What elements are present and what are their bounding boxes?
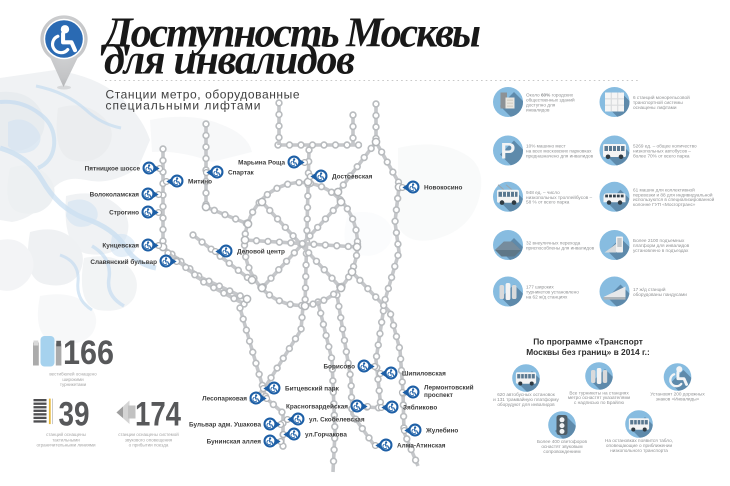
svg-text:Шипиловская: Шипиловская — [402, 371, 446, 378]
svg-text:станции оснащены системой: станции оснащены системой — [118, 431, 179, 437]
svg-text:P: P — [501, 138, 516, 163]
svg-text:установлено в подъездах: установлено в подъездах — [633, 248, 689, 253]
svg-text:Бунинская аллея: Бунинская аллея — [207, 439, 262, 446]
svg-text:Алма-Атинская: Алма-Атинская — [397, 443, 446, 450]
svg-text:Славянский бульвар: Славянский бульвар — [90, 258, 157, 266]
svg-text:Москвы без границ» в 2014 г.:: Москвы без границ» в 2014 г.: — [526, 347, 650, 357]
svg-text:ограничительными линиями: ограничительными линиями — [36, 443, 96, 448]
svg-text:оснащены лифтами: оснащены лифтами — [633, 105, 677, 110]
svg-text:Жулебино: Жулебино — [425, 427, 458, 435]
svg-text:звукового оповещения: звукового оповещения — [125, 437, 173, 442]
svg-text:оборудуют для инвалидов: оборудуют для инвалидов — [497, 402, 555, 407]
svg-text:турникетами: турникетами — [60, 382, 87, 387]
svg-text:174: 174 — [135, 396, 181, 434]
svg-text:на 62 ж/д станциях: на 62 ж/д станциях — [526, 294, 568, 299]
svg-text:вестибюлей оснащено: вестибюлей оснащено — [49, 371, 97, 377]
svg-text:Кунцевская: Кунцевская — [102, 243, 139, 250]
svg-text:Спартак: Спартак — [228, 170, 255, 177]
svg-text:Марьина Роща: Марьина Роща — [238, 160, 285, 167]
svg-text:Деловой центр: Деловой центр — [237, 248, 285, 256]
svg-text:с надписью по Брайлю: с надписью по Брайлю — [574, 399, 624, 405]
svg-text:знаков «Инвалиды»: знаков «Инвалиды» — [656, 396, 700, 401]
svg-text:специальными лифтами: специальными лифтами — [106, 99, 261, 113]
svg-text:Строгино: Строгино — [109, 210, 139, 217]
svg-text:приспособлены для инвалидов: приспособлены для инвалидов — [526, 245, 595, 250]
svg-text:низкопольного транспорта: низкопольного транспорта — [610, 448, 668, 453]
svg-text:колонне ГУП «Мосгортранс»: колонне ГУП «Мосгортранс» — [633, 202, 696, 207]
svg-text:предназначено для инвалидов: предназначено для инвалидов — [526, 153, 594, 158]
svg-text:58 % от всего парка: 58 % от всего парка — [526, 200, 570, 205]
svg-text:проспект: проспект — [424, 392, 453, 399]
svg-text:широкими: широкими — [62, 377, 84, 382]
svg-text:Лермонтовский: Лермонтовский — [424, 384, 474, 392]
svg-text:Битцевский парк: Битцевский парк — [285, 385, 340, 393]
svg-text:Зябликово: Зябликово — [403, 404, 437, 412]
svg-text:о прибытии поезда: о прибытии поезда — [129, 443, 169, 448]
svg-text:для инвалидов: для инвалидов — [104, 38, 355, 84]
svg-text:39: 39 — [59, 396, 90, 434]
svg-text:ул. Скобелевская: ул. Скобелевская — [309, 416, 365, 424]
svg-text:Достоевская: Достоевская — [332, 174, 373, 181]
svg-text:Лесопарковая: Лесопарковая — [202, 396, 247, 403]
svg-text:более 70% от всего парка: более 70% от всего парка — [633, 153, 690, 158]
svg-text:Волоколамская: Волоколамская — [90, 192, 140, 199]
svg-text:Митино: Митино — [188, 179, 212, 186]
svg-text:Красногвардейская: Красногвардейская — [286, 403, 348, 411]
svg-text:Бульвар адм. Ушакова: Бульвар адм. Ушакова — [189, 422, 261, 429]
svg-text:По программе «Транспорт: По программе «Транспорт — [533, 337, 643, 347]
svg-text:сопровождением: сопровождением — [543, 449, 580, 454]
svg-text:оборудованы пандусами: оборудованы пандусами — [633, 292, 687, 297]
svg-text:ул.Горчакова: ул.Горчакова — [305, 432, 347, 439]
svg-text:166: 166 — [63, 334, 114, 372]
svg-text:Пятницкое шоссе: Пятницкое шоссе — [85, 166, 141, 173]
svg-text:Новокосино: Новокосино — [424, 185, 463, 192]
svg-text:инвалидов: инвалидов — [526, 107, 550, 112]
svg-text:тактильными: тактильными — [52, 437, 80, 442]
svg-text:станций оснащены: станций оснащены — [46, 431, 86, 437]
svg-text:Борисово: Борисово — [323, 364, 355, 371]
